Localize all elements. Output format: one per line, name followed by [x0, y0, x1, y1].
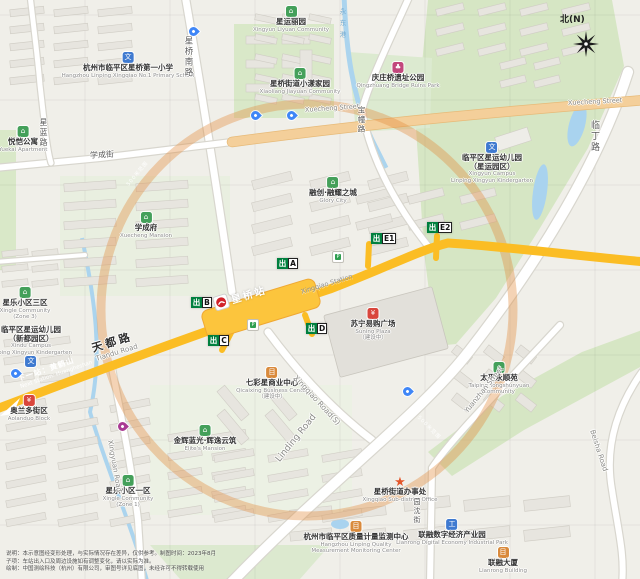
poi-xingyun-kindergarten-xindu[interactable]: 临平区星运幼儿园（新都园区）Xindu CampusLinping Xingyu… [0, 326, 72, 368]
exit-letter: C [219, 335, 229, 346]
building-icon: 目 [267, 367, 278, 378]
community-icon: ⌂ [19, 287, 30, 298]
community-icon: ⌂ [122, 475, 133, 486]
poi-text: 学成府 [135, 224, 158, 233]
poi-text: （新都园区） [8, 335, 53, 344]
community-icon: ⌂ [286, 6, 297, 17]
bike-parking-icon: P [250, 322, 256, 328]
metro-exit-icon: 出 [191, 297, 202, 308]
poi-text: 星乐小区一区 [105, 487, 150, 496]
disclaimer-line2: 子项：车站出入口及周边设施如有调整变化，请以实际为准。 [6, 559, 216, 567]
exit-D-badge[interactable]: 出D [306, 323, 327, 334]
school-icon: 文 [486, 142, 497, 153]
park-icon: ♣ [392, 62, 403, 73]
poi-glory-city[interactable]: ⌂融创·融耀之城Glory City [309, 177, 357, 204]
poi-xingle-zone1[interactable]: ⌂星乐小区一区Xingle Community(Zone 1) [103, 475, 154, 509]
poi-text: Glory City [319, 198, 346, 205]
poi-xiaoliang-jiayuan[interactable]: ⌂星桥街道小漾家园Xiaoliang Jiayuan Community [260, 68, 341, 95]
poi-qingzhuang-park[interactable]: ♣庆庄桥遗址公园Qingzhuang Bridge Ruins Park [356, 62, 439, 89]
school-icon: 文 [122, 52, 133, 63]
poi-text: 星运丽园 [276, 18, 306, 27]
poi-text: Xuecheng Mansion [120, 233, 172, 240]
poi-text: Hangzhou Linping Xingqiao No.1 Primary S… [62, 73, 195, 80]
exit-letter: E2 [438, 222, 452, 233]
poi-text: 七彩星商业中心 [246, 379, 299, 388]
poi-text: 星桥街道小漾家园 [270, 80, 330, 89]
exit-A-badge[interactable]: 出A [277, 258, 298, 269]
poi-text: 星桥街道办事处 [374, 488, 427, 497]
poi-text: Xiaoliang Jiayuan Community [260, 89, 341, 96]
compass-star [573, 31, 599, 57]
station-area-map: 星桥站 Xingqiao Station 下一站：黄鹤山 Next Statio… [0, 0, 640, 579]
poi-xingqiao-no1-primary-school[interactable]: 文杭州市临平区星桥第一小学Hangzhou Linping Xingqiao N… [62, 52, 195, 79]
poi-text: Measurement Monitoring Center [311, 548, 400, 555]
poi-quality-center[interactable]: 目杭州市临平区质量计量监测中心Hangzhou Linping QualityM… [304, 521, 409, 555]
poi-xingyun-liyuan[interactable]: ⌂星运丽园Xingyun Liyuan Community [253, 6, 329, 33]
compass-label: 北(N) [560, 12, 585, 25]
road-label-学成街: 学成街 [90, 149, 115, 161]
exit-letter: A [288, 258, 298, 269]
exit-C-badge[interactable]: 出C [208, 335, 229, 346]
poi-lianrong-building[interactable]: 目联融大厦Lianrong Building [479, 547, 527, 574]
tech-icon: 工 [447, 519, 458, 530]
poi-text: 悦恺公寓 [8, 138, 38, 147]
poi-text: 苏宁易购广场 [351, 320, 396, 329]
disclaimer-line3: 绘制：中国测绘科技（杭州）有限公司，审图号详见底图，未经许可不得转载使用 [6, 566, 216, 574]
poi-subdistrict-office[interactable]: ★星桥街道办事处Xingqiao Sub-district Office [362, 477, 437, 503]
poi-text: 杭州市临平区质量计量监测中心 [304, 533, 409, 542]
poi-text: 杭州市临平区星桥第一小学 [83, 64, 173, 73]
poi-text: （建设中） [359, 335, 387, 342]
bike-parking-badge[interactable]: P [332, 251, 344, 263]
community-icon: ⌂ [199, 425, 210, 436]
compass: 北(N) [560, 12, 585, 25]
exit-letter: B [202, 297, 212, 308]
poi-text: 星乐小区三区 [2, 299, 47, 308]
community-icon: ⌂ [327, 177, 338, 188]
metro-exit-icon: 出 [427, 222, 438, 233]
poi-text: 奥兰多街区 [10, 407, 48, 416]
poi-text: Lianrong Digital Economy Industrial Park [396, 540, 508, 547]
building-icon: 目 [498, 547, 509, 558]
road-label-宝幢路: 宝幢路 [356, 106, 367, 135]
poi-aolanduo-block[interactable]: ¥奥兰多街区Aolanduo Block [8, 395, 50, 422]
metro-exit-icon: 出 [277, 258, 288, 269]
poi-text: (Zone 3) [13, 314, 37, 321]
poi-text: 庆庄桥遗址公园 [372, 74, 425, 83]
mall-icon: ¥ [23, 395, 34, 406]
metro-exit-icon: 出 [306, 323, 317, 334]
poi-text: （星运园区） [469, 163, 514, 172]
bike-parking-badge[interactable]: P [247, 319, 259, 331]
map-disclaimer: 说明：本示意图经变形处理，与实际情况存在差异，仅供参考。制图时间：2023年8月… [6, 551, 216, 574]
poi-text: Linping Xingyun Kindergarten [451, 178, 533, 185]
road-label-临丁路: 临丁路 [588, 120, 601, 153]
exit-B-badge[interactable]: 出B [191, 297, 212, 308]
building-icon: 目 [351, 521, 362, 532]
road-label-星蓝路: 星蓝路 [38, 118, 49, 148]
poi-text: Elite's Mansion [184, 446, 225, 453]
poi-text: Xingyun Liyuan Community [253, 27, 329, 34]
poi-text: Aolanduo Block [8, 416, 50, 423]
poi-text: Linping Xingyun Kindergarten [0, 350, 72, 357]
poi-elites-mansion[interactable]: ⌂金辉蓝光·辉逸云筑Elite's Mansion [174, 425, 237, 452]
disclaimer-line1: 说明：本示意图经变形处理，与实际情况存在差异，仅供参考。制图时间：2023年8月 [6, 551, 216, 559]
poi-text: 联融大厦 [488, 559, 518, 568]
poi-xuecheng-mansion[interactable]: ⌂学成府Xuecheng Mansion [120, 212, 172, 239]
poi-text: Qingzhuang Bridge Ruins Park [356, 83, 439, 90]
metro-exit-icon: 出 [208, 335, 219, 346]
poi-suning-plaza[interactable]: ¥苏宁易购广场Suning Plaza（建设中） [351, 308, 396, 342]
river-label: 永东港 [337, 8, 347, 43]
community-icon: ⌂ [294, 68, 305, 79]
exit-E1-badge[interactable]: 出E1 [371, 233, 396, 244]
school-icon: 文 [25, 356, 36, 367]
metro-exit-icon: 出 [371, 233, 382, 244]
poi-text: Xingqiao Sub-district Office [362, 497, 437, 504]
road-label-星桥南路: 星桥南路 [182, 36, 194, 78]
road-label-园沈街: 园沈街 [412, 498, 422, 525]
poi-text: （建设中） [258, 394, 286, 401]
exit-letter: E1 [382, 233, 396, 244]
community-icon: ⌂ [140, 212, 151, 223]
poi-text: 联融数字经济产业园 [418, 531, 486, 540]
bike-parking-icon: P [335, 254, 341, 260]
poi-text: Lianrong Building [479, 568, 527, 575]
poi-xingyun-kindergarten-xingyun[interactable]: 文临平区星运幼儿园（星运园区）Xingyun CampusLinping Xin… [451, 142, 533, 184]
poi-text: 融创·融耀之城 [309, 189, 357, 198]
poi-xingle-zone3[interactable]: ⌂星乐小区三区Xingle Community(Zone 3) [0, 287, 50, 321]
poi-text: 金辉蓝光·辉逸云筑 [174, 437, 237, 446]
exit-letter: D [317, 323, 327, 334]
poi-text: (Zone 1) [116, 502, 140, 509]
community-icon: ⌂ [17, 126, 28, 137]
mall-icon: ¥ [368, 308, 379, 319]
exit-E2-badge[interactable]: 出E2 [427, 222, 452, 233]
